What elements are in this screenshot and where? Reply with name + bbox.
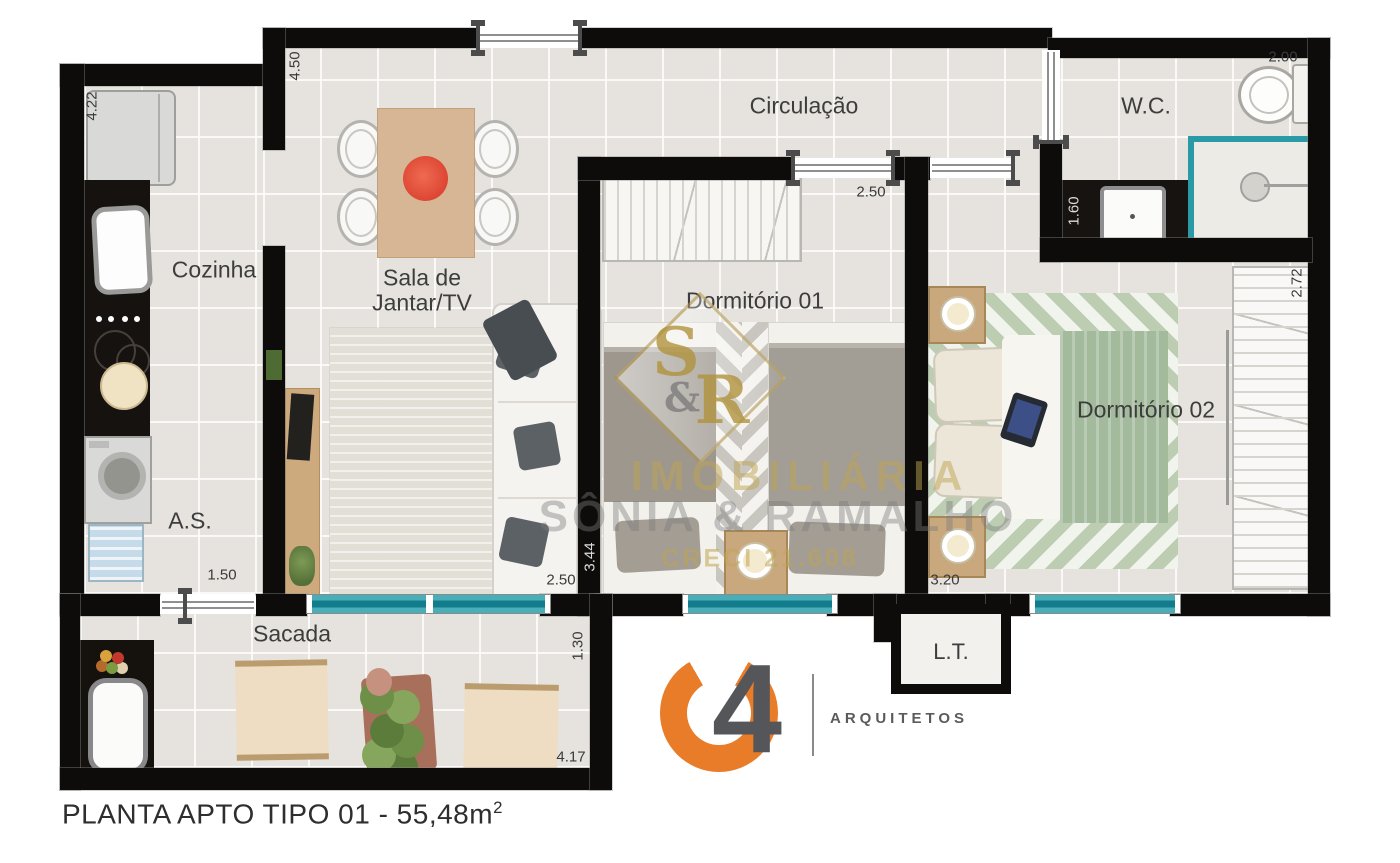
wall	[263, 28, 285, 150]
sofa-pillow	[512, 421, 561, 472]
c4-logo: 4 ARQUITETOS	[660, 650, 990, 785]
dim-wc-vanity: 1.60	[1066, 196, 1083, 225]
window-end-marker	[573, 20, 587, 56]
table-centerpiece	[403, 156, 448, 201]
wall	[256, 594, 307, 616]
sofa-pillow	[498, 516, 550, 568]
door-end-marker	[1033, 135, 1069, 149]
toilet-bowl-inner	[1249, 76, 1289, 114]
dorm2-blanket	[1060, 331, 1168, 523]
window-living-top	[478, 28, 580, 48]
room-label-dormitorio1: Dormitório 01	[686, 288, 824, 315]
wall	[263, 28, 478, 48]
dorm2-wardrobe	[1232, 266, 1310, 590]
wall	[60, 64, 84, 614]
dim-wc-width: 2.00	[1268, 49, 1297, 66]
bed-pillow	[788, 521, 886, 576]
window-dorm2	[1030, 595, 1180, 613]
balcony-seat	[235, 659, 329, 761]
dim-cozinha-depth: 4.22	[84, 91, 101, 120]
dim-circulacao-door: 2.50	[856, 184, 885, 201]
door-end-marker	[1006, 150, 1020, 186]
door-end-marker	[178, 588, 192, 624]
balcony-flowers	[100, 650, 112, 662]
dorm2-lamp	[942, 298, 974, 330]
dim-dorm2-width: 3.20	[930, 572, 959, 589]
dim-dorm1-depth: 3.44	[582, 542, 599, 571]
wall-decor-plant	[266, 350, 282, 380]
balcony-sink	[88, 678, 148, 774]
dim-sala-depth: 4.50	[287, 51, 304, 80]
door-end-marker	[886, 150, 900, 186]
door-dorm2	[930, 158, 1013, 178]
room-label-sacada: Sacada	[253, 621, 331, 648]
dorm1-wardrobe	[602, 176, 802, 262]
page-title-text: PLANTA APTO TIPO 01 - 55,48m	[62, 798, 493, 829]
washing-machine	[84, 436, 152, 524]
shower-arm	[1264, 184, 1308, 187]
window-dorm1	[683, 595, 837, 613]
door-wc	[1042, 50, 1060, 144]
wall	[1170, 594, 1330, 616]
dim-dorm2-depth: 2.72	[1289, 268, 1306, 297]
wall	[578, 157, 793, 180]
bed-blanket	[604, 347, 717, 502]
shower-head	[1240, 172, 1270, 202]
wall	[590, 594, 612, 790]
dorm1-bed-right	[768, 322, 907, 598]
door-end-marker	[786, 150, 800, 186]
wardrobe-track-line	[1226, 330, 1229, 505]
wall	[60, 594, 80, 790]
wall	[1308, 38, 1330, 616]
window-end-marker	[471, 20, 485, 56]
door-laundry-balcony	[160, 596, 256, 614]
wall	[60, 64, 276, 86]
tv	[287, 393, 315, 460]
wall	[60, 768, 610, 790]
room-label-sala-line2: Jantar/TV	[372, 290, 472, 317]
c4-logo-number: 4	[712, 636, 782, 781]
washer-door	[98, 452, 146, 500]
dim-sala-width: 2.50	[546, 572, 575, 589]
wall	[580, 28, 1052, 48]
toilet-bowl	[1238, 66, 1300, 124]
dim-as-door: 1.50	[207, 567, 236, 584]
room-label-cozinha: Cozinha	[172, 257, 256, 284]
dorm2-lamp	[942, 530, 974, 562]
fridge-door-line	[158, 94, 160, 182]
room-label-sala-line1: Sala de	[383, 265, 461, 292]
dim-sacada-depth: 1.30	[570, 631, 587, 660]
room-label-circulacao: Circulação	[750, 93, 859, 120]
rack-plant	[289, 546, 315, 586]
wall	[1040, 238, 1312, 262]
floor-plan: L.T. Cozinha Sala de Jantar/TV Circulaçã…	[0, 0, 1400, 863]
sofa-cushion-line	[498, 497, 576, 499]
c4-logo-divider	[812, 674, 814, 756]
c4-logo-subtitle: ARQUITETOS	[830, 710, 968, 727]
kitchen-sink	[91, 205, 154, 296]
balcony-planter-accent	[366, 668, 392, 696]
page-title-sup: 2	[493, 798, 503, 817]
wc-sink-drain	[1130, 214, 1135, 219]
wall	[905, 157, 928, 616]
page-title: PLANTA APTO TIPO 01 - 55,48m2	[62, 798, 503, 830]
stove-burner-dots	[96, 316, 102, 322]
dim-sacada-width: 4.17	[556, 749, 585, 766]
dining-chair	[471, 188, 519, 246]
washer-panel	[89, 441, 109, 448]
kitchen-bowl	[100, 362, 148, 410]
sofa-cushion-line	[498, 401, 576, 403]
sliding-door-balcony	[307, 595, 550, 613]
room-label-wc: W.C.	[1121, 93, 1171, 120]
room-label-as: A.S.	[168, 508, 211, 535]
dining-chair	[471, 120, 519, 178]
dorm1-bed-left	[603, 322, 718, 598]
dorm1-lamp	[738, 544, 772, 578]
laundry-basket	[88, 524, 144, 582]
bed-pillow	[615, 517, 702, 573]
room-label-dormitorio2: Dormitório 02	[1077, 397, 1215, 424]
door-dorm1	[793, 158, 893, 178]
bed-blanket	[769, 343, 906, 506]
tablet-screen	[1007, 399, 1042, 439]
wall	[263, 246, 285, 614]
